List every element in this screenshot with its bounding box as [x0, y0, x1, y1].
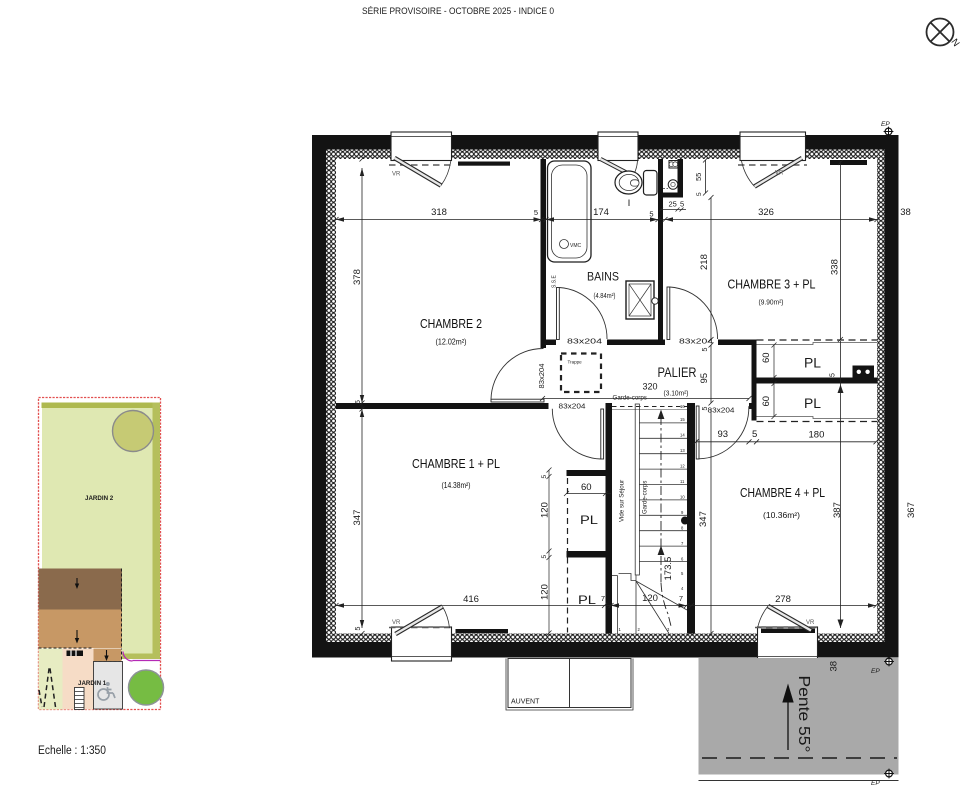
svg-text:PL: PL	[580, 513, 598, 527]
svg-text:PL: PL	[804, 356, 822, 371]
svg-text:EP: EP	[871, 780, 880, 787]
svg-text:7: 7	[601, 594, 605, 603]
svg-text:(10.36m²): (10.36m²)	[763, 511, 800, 520]
svg-text:VR: VR	[775, 171, 784, 177]
svg-text:83x204: 83x204	[559, 404, 586, 411]
svg-text:416: 416	[463, 594, 479, 605]
svg-text:173.5: 173.5	[663, 557, 674, 581]
svg-text:13: 13	[680, 448, 685, 453]
svg-text:CHAMBRE 4 + PL: CHAMBRE 4 + PL	[740, 486, 825, 500]
svg-text:5: 5	[541, 555, 548, 559]
svg-text:5: 5	[355, 627, 362, 631]
svg-text:PL: PL	[578, 593, 596, 607]
svg-text:83x204: 83x204	[708, 408, 735, 415]
svg-text:83x204: 83x204	[539, 363, 546, 388]
svg-text:180: 180	[809, 430, 825, 441]
svg-text:5: 5	[649, 210, 653, 219]
svg-text:Pente 55°: Pente 55°	[795, 676, 812, 753]
svg-text:(9.90m²): (9.90m²)	[759, 298, 784, 307]
svg-text:95: 95	[699, 373, 710, 384]
svg-text:Vide sur Séjour: Vide sur Séjour	[619, 480, 626, 522]
svg-text:16: 16	[680, 404, 685, 409]
svg-text:55: 55	[694, 173, 703, 181]
svg-text:VR: VR	[392, 620, 401, 626]
svg-text:14: 14	[680, 433, 685, 438]
svg-text:S.S.E: S.S.E	[552, 275, 558, 288]
svg-text:347: 347	[352, 510, 363, 526]
svg-text:5: 5	[541, 475, 548, 479]
svg-text:60: 60	[761, 396, 772, 407]
svg-text:5: 5	[702, 348, 709, 352]
svg-text:38: 38	[900, 207, 911, 218]
svg-text:5: 5	[830, 373, 837, 377]
svg-text:(12.02m²): (12.02m²)	[436, 338, 467, 347]
svg-text:93: 93	[718, 429, 729, 440]
svg-text:JARDIN 1: JARDIN 1	[78, 680, 107, 687]
svg-text:PL: PL	[804, 396, 822, 411]
svg-text:CHAMBRE 1 + PL: CHAMBRE 1 + PL	[412, 457, 500, 471]
svg-text:174: 174	[593, 207, 609, 218]
svg-text:JARDIN 2: JARDIN 2	[85, 495, 114, 502]
svg-text:15: 15	[680, 417, 685, 422]
svg-text:11: 11	[680, 479, 685, 484]
svg-text:83x204: 83x204	[567, 339, 602, 346]
svg-text:120: 120	[642, 593, 658, 604]
svg-text:Echelle : 1:350: Echelle : 1:350	[38, 745, 106, 757]
svg-text:120: 120	[540, 584, 551, 600]
svg-text:CHAMBRE 2: CHAMBRE 2	[420, 317, 482, 331]
svg-text:10: 10	[680, 495, 685, 500]
svg-text:338: 338	[830, 259, 841, 275]
svg-text:387: 387	[832, 502, 843, 518]
svg-text:EP: EP	[871, 668, 880, 675]
svg-text:AUVENT: AUVENT	[511, 699, 540, 706]
svg-text:Trappe: Trappe	[568, 360, 583, 365]
svg-text:60: 60	[581, 482, 592, 493]
svg-text:7: 7	[679, 594, 683, 603]
svg-text:PALIER: PALIER	[658, 365, 697, 380]
svg-text:Garde-corps: Garde-corps	[613, 395, 647, 402]
svg-text:25: 25	[669, 200, 677, 209]
svg-text:318: 318	[431, 207, 447, 218]
svg-text:60: 60	[761, 352, 772, 363]
svg-text:SÉRIE PROVISOIRE - OCTOBRE 202: SÉRIE PROVISOIRE - OCTOBRE 2025 - INDICE…	[362, 6, 554, 17]
svg-text:VR: VR	[806, 620, 815, 626]
svg-text:320: 320	[643, 382, 658, 392]
svg-text:38: 38	[829, 661, 840, 672]
svg-text:5: 5	[355, 400, 362, 404]
svg-text:378: 378	[352, 269, 363, 285]
svg-text:VR: VR	[392, 172, 401, 178]
svg-text:5: 5	[696, 192, 703, 196]
svg-text:326: 326	[758, 207, 774, 218]
svg-text:12: 12	[680, 464, 685, 469]
svg-text:(3.10m²): (3.10m²)	[664, 391, 689, 398]
svg-text:(14.38m²): (14.38m²)	[442, 481, 471, 490]
svg-text:347: 347	[698, 511, 709, 527]
svg-text:(4.84m²): (4.84m²)	[594, 291, 616, 300]
svg-text:VMC: VMC	[570, 243, 582, 249]
svg-text:CHAMBRE 3 + PL: CHAMBRE 3 + PL	[728, 278, 816, 292]
svg-text:367: 367	[906, 502, 917, 518]
svg-text:EP: EP	[881, 121, 890, 128]
svg-text:218: 218	[699, 254, 710, 270]
svg-text:83x204: 83x204	[679, 339, 713, 346]
svg-text:Garde-corps: Garde-corps	[643, 481, 649, 514]
svg-text:5: 5	[534, 208, 538, 217]
svg-text:5: 5	[752, 429, 757, 440]
svg-text:120: 120	[540, 502, 551, 518]
svg-text:278: 278	[775, 594, 791, 605]
svg-text:BAINS: BAINS	[587, 272, 619, 284]
svg-text:5: 5	[680, 200, 684, 209]
